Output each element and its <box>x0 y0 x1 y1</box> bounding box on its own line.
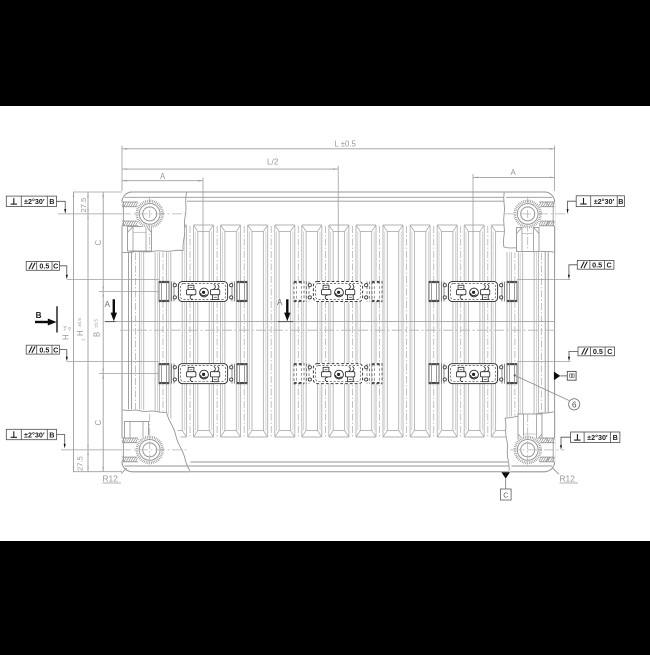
svg-text:A: A <box>277 298 283 307</box>
svg-text:H: H <box>62 334 71 340</box>
svg-text:B: B <box>36 311 42 320</box>
svg-text:-0: -0 <box>67 326 72 331</box>
svg-text:±2°30′: ±2°30′ <box>587 433 608 442</box>
svg-text:B: B <box>618 197 623 206</box>
svg-text:±2°30′: ±2°30′ <box>594 197 615 206</box>
svg-text:A: A <box>511 168 517 177</box>
svg-text:C: C <box>94 420 103 426</box>
svg-text:±2°30′: ±2°30′ <box>24 430 45 439</box>
svg-text:R12: R12 <box>560 473 576 483</box>
svg-text:B: B <box>613 433 618 442</box>
svg-text:±0.5: ±0.5 <box>93 319 98 328</box>
svg-text:C: C <box>503 491 508 500</box>
svg-text:B: B <box>92 332 101 337</box>
svg-text:B: B <box>49 197 54 206</box>
svg-text:6: 6 <box>572 401 577 410</box>
svg-text:L/2: L/2 <box>267 158 279 167</box>
svg-text:27.5: 27.5 <box>76 456 85 471</box>
svg-text:1: 1 <box>81 338 86 341</box>
svg-text:C: C <box>94 240 103 246</box>
svg-text:C: C <box>607 347 612 356</box>
svg-text:±2°30′: ±2°30′ <box>24 197 45 206</box>
svg-text:27.5: 27.5 <box>79 198 88 213</box>
svg-text:H: H <box>76 330 85 336</box>
svg-text:R12: R12 <box>103 473 119 483</box>
svg-text:L ±0.5: L ±0.5 <box>335 139 357 148</box>
svg-text:0.5: 0.5 <box>593 347 603 356</box>
svg-text:0.5: 0.5 <box>592 261 602 270</box>
svg-text:A: A <box>160 172 166 181</box>
svg-text:0.5: 0.5 <box>39 262 49 271</box>
svg-text:C: C <box>606 261 611 270</box>
svg-text:A: A <box>105 300 111 309</box>
svg-text:C: C <box>53 345 58 354</box>
svg-text:B: B <box>49 430 54 439</box>
svg-text:±0.5: ±0.5 <box>77 318 82 327</box>
svg-text:C: C <box>53 262 58 271</box>
svg-text:0.5: 0.5 <box>39 345 49 354</box>
